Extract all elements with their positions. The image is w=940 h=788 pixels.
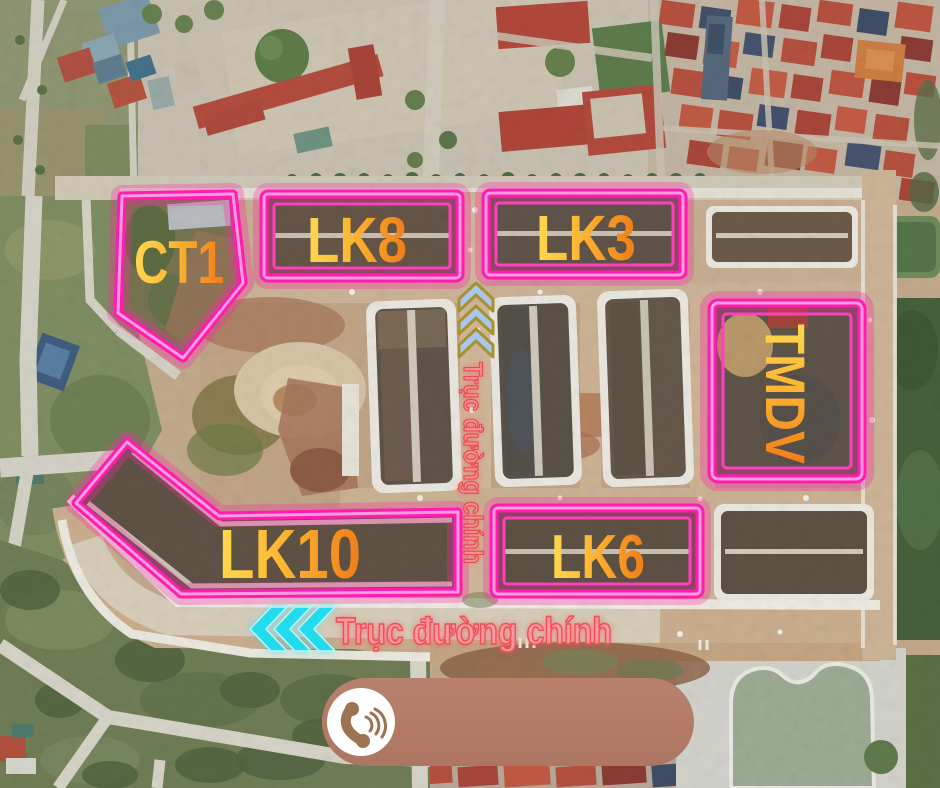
svg-text:LK6: LK6 [551, 523, 645, 592]
svg-text:LK8: LK8 [307, 204, 407, 276]
svg-text:Trục đường chính: Trục đường chính [336, 611, 612, 653]
svg-text:CT1: CT1 [134, 229, 224, 296]
svg-text:LK10: LK10 [219, 515, 361, 593]
svg-text:TMDV: TMDV [754, 324, 817, 464]
svg-text:Trục đường chính: Trục đường chính [458, 362, 488, 564]
svg-text:LK3: LK3 [536, 202, 636, 274]
